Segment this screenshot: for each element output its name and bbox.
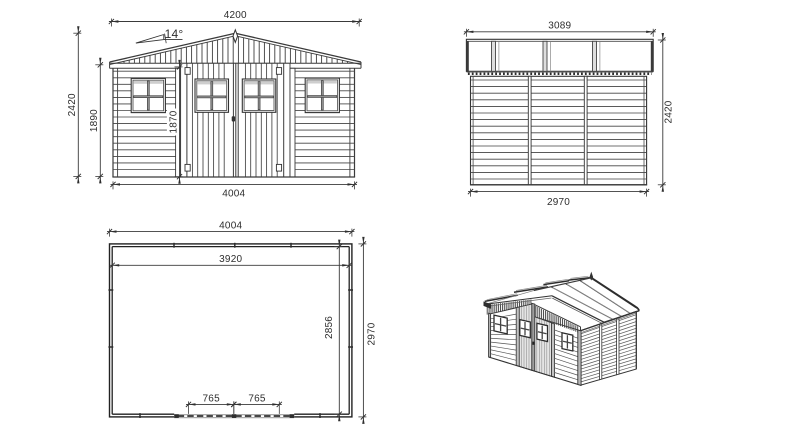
svg-text:2420: 2420 bbox=[664, 100, 675, 123]
svg-text:2856: 2856 bbox=[324, 316, 335, 339]
svg-text:765: 765 bbox=[203, 394, 221, 405]
svg-text:4200: 4200 bbox=[224, 10, 247, 21]
svg-text:2970: 2970 bbox=[367, 322, 378, 345]
svg-text:1870: 1870 bbox=[168, 110, 179, 133]
svg-text:765: 765 bbox=[248, 394, 266, 405]
svg-text:4004: 4004 bbox=[222, 189, 245, 200]
svg-text:2970: 2970 bbox=[547, 197, 570, 208]
svg-text:1890: 1890 bbox=[89, 109, 100, 132]
svg-text:4004: 4004 bbox=[219, 220, 242, 231]
svg-text:3920: 3920 bbox=[219, 254, 242, 265]
svg-text:3089: 3089 bbox=[548, 21, 571, 32]
svg-text:2420: 2420 bbox=[67, 93, 78, 116]
svg-text:14°: 14° bbox=[165, 27, 184, 41]
